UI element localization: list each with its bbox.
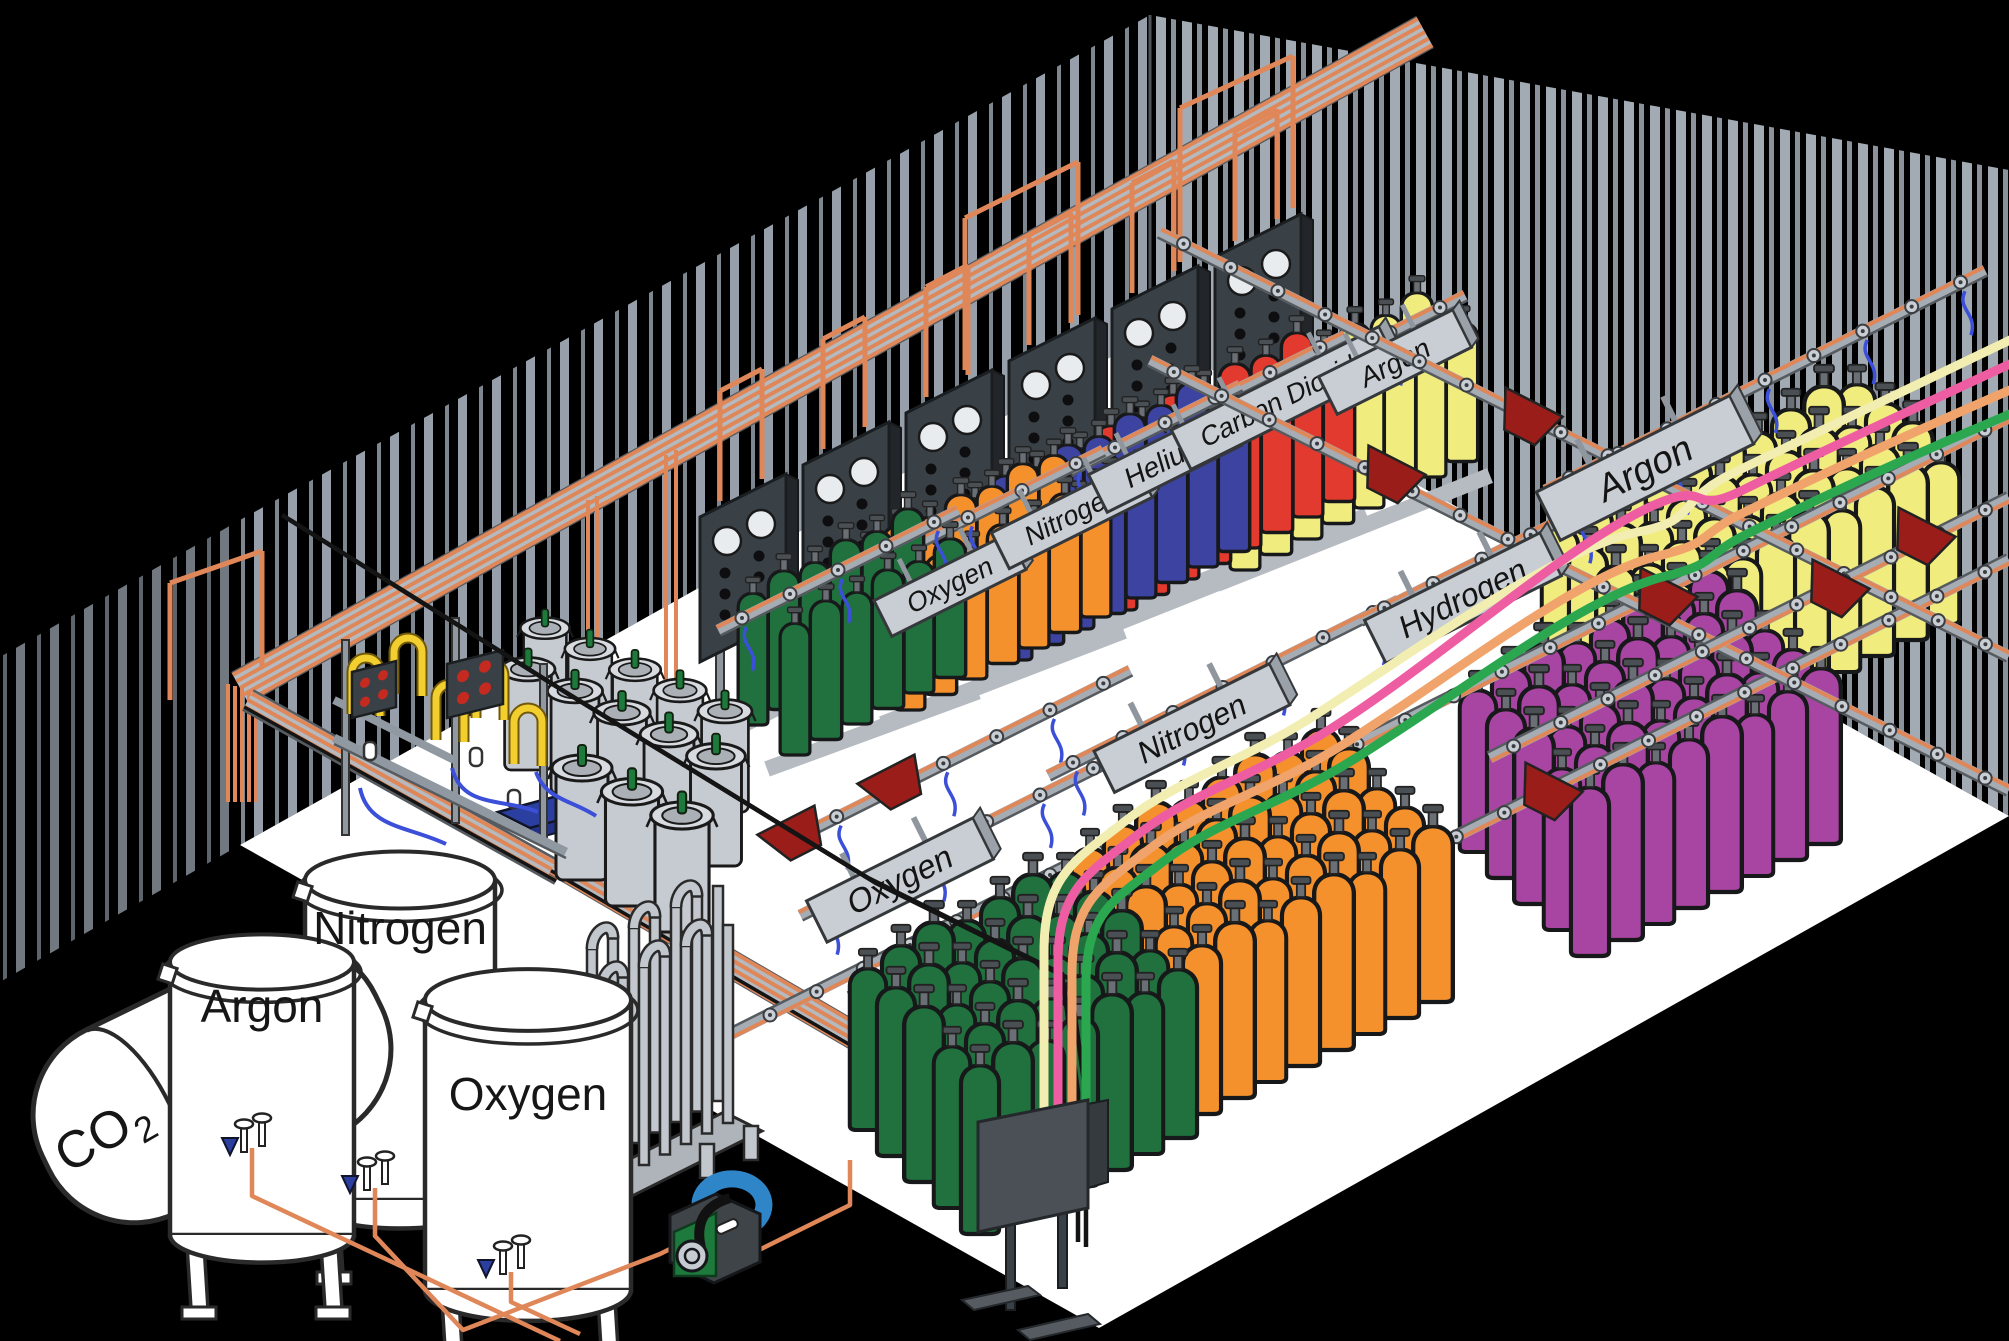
gas-cylinder [780,607,810,755]
indicator-panel [352,661,396,718]
gas-filling-plant-illustration: Oxygen Nitrogen Helium Carbon Dioxide Ar… [0,0,2009,1341]
vaporizer-tube [713,886,723,1101]
gas-cylinder [810,584,841,740]
oxygen-tank-label: Oxygen [449,1068,608,1120]
plant-scene: Oxygen Nitrogen Helium Carbon Dioxide Ar… [0,0,2009,1341]
vaporizer-tube [639,967,649,1165]
valve-knob [470,748,482,766]
argon-tank-label: Argon [201,980,324,1032]
vaporizer-tube [681,946,691,1144]
valve-knob [364,742,376,760]
vaporizer-tube [671,907,681,1122]
nitrogen-tank-label: Nitrogen [313,902,487,954]
vaporizer-tube [660,957,670,1155]
gas-cylinder [842,576,872,724]
vaporizer-tube [723,925,733,1123]
vaporizer-tube [702,936,712,1134]
